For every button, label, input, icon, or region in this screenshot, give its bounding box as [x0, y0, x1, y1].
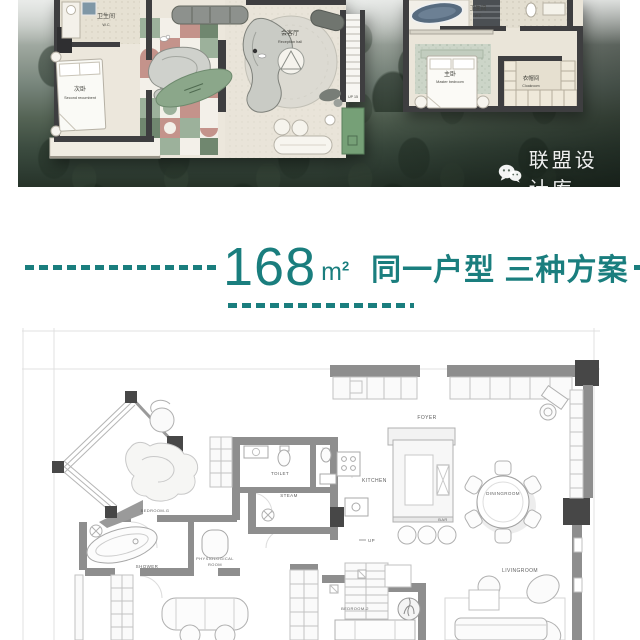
area-unit: m2 [321, 258, 349, 287]
title-caption: 同一户型 三种方案 [371, 245, 628, 289]
area-unit-sup: 2 [342, 258, 349, 273]
shower-fixtures [83, 520, 228, 570]
plan-a-green-planter [342, 108, 364, 154]
plan-a-wc-label-zh: 卫生间 [97, 12, 115, 20]
plan-b-cloakroom-shelves [504, 61, 577, 108]
area-unit-base: m [321, 258, 342, 286]
floor-plan-render-left: 卫生间 W.C 次卧 Second recumbent 会客厅 Receptio… [42, 0, 365, 162]
plan-a-bed [51, 52, 106, 136]
label-steam: STEAM [280, 493, 298, 498]
blueprint-svg: FOYER KITCHEN BAR UP DININGROOM LIVINGRO… [22, 328, 600, 640]
floor-plan-render-right: 卫生间 W.C 主卧 Master bedroom 衣帽间 Cloakroom [403, 0, 597, 120]
plan-a-reception-label-en: Reception hall [278, 40, 302, 44]
plan-a-triangle-table [278, 48, 304, 74]
label-physio-1: PHYSIOLOGICAL [196, 556, 234, 561]
plan-b-cloak-label-en: Cloakroom [522, 84, 539, 88]
watermark: 联盟设计库 [498, 144, 620, 187]
label-living: LIVINGROOM [502, 568, 538, 574]
blueprint-floor-plan: FOYER KITCHEN BAR UP DININGROOM LIVINGRO… [22, 328, 600, 640]
plan-b-stairs [473, 0, 500, 26]
hero-photo-section: 卫生间 W.C 次卧 Second recumbent 会客厅 Receptio… [18, 0, 620, 187]
label-bedroom-2: BEDROOM-2 [341, 606, 369, 611]
plan-b-wc-label-en: W.C [475, 14, 482, 18]
dining-set [463, 461, 542, 543]
label-dining: DININGROOM [486, 491, 520, 496]
area-number: 168 [223, 240, 316, 294]
plan-b-wc-fixtures [526, 3, 565, 17]
label-bar: BAR [438, 517, 447, 522]
kitchen-fixtures [337, 452, 368, 516]
toilet-fixtures [244, 446, 336, 521]
label-toilet: TOILET [271, 471, 289, 476]
plan-a-bedroom-label-zh: 次卧 [74, 85, 86, 93]
plan-b-master-label-zh: 主卧 [444, 70, 456, 78]
label-physio-2: ROOM [208, 562, 222, 567]
plan-a-bench [172, 6, 248, 24]
plan-a-reception-label-zh: 会客厅 [281, 29, 299, 37]
plan-b-wc-label-zh: 卫生间 [470, 4, 487, 12]
label-up: UP [368, 538, 375, 543]
plan-a-bedroom-label-en: Second recumbent [64, 96, 97, 100]
label-kitchen: KITCHEN [362, 478, 387, 484]
kitchen-island [388, 428, 456, 544]
bedroomG-furniture [126, 400, 198, 501]
label-shower: SHOWER [136, 564, 159, 569]
watermark-text: 联盟设计库 [529, 144, 620, 187]
section-title: 168 m2 同一户型 三种方案 [25, 236, 617, 298]
plan-a-wc-label-en: W.C [102, 23, 109, 27]
label-bedroom-g: BEDROOM-G [141, 508, 170, 513]
trailing-dash [634, 265, 640, 270]
wechat-icon [498, 161, 522, 186]
dash-line-second [228, 303, 414, 308]
page: 卫生间 W.C 次卧 Second recumbent 会客厅 Receptio… [0, 0, 640, 640]
label-foyer: FOYER [417, 415, 436, 421]
plan-a-stairs-label: UP 15 [348, 95, 358, 99]
plan-b-master-label-en: Master bedroom [436, 80, 464, 84]
dash-line-left [25, 265, 217, 270]
plan-b-cloak-label-zh: 衣帽间 [523, 74, 540, 82]
bedroom1-furniture [162, 598, 248, 640]
